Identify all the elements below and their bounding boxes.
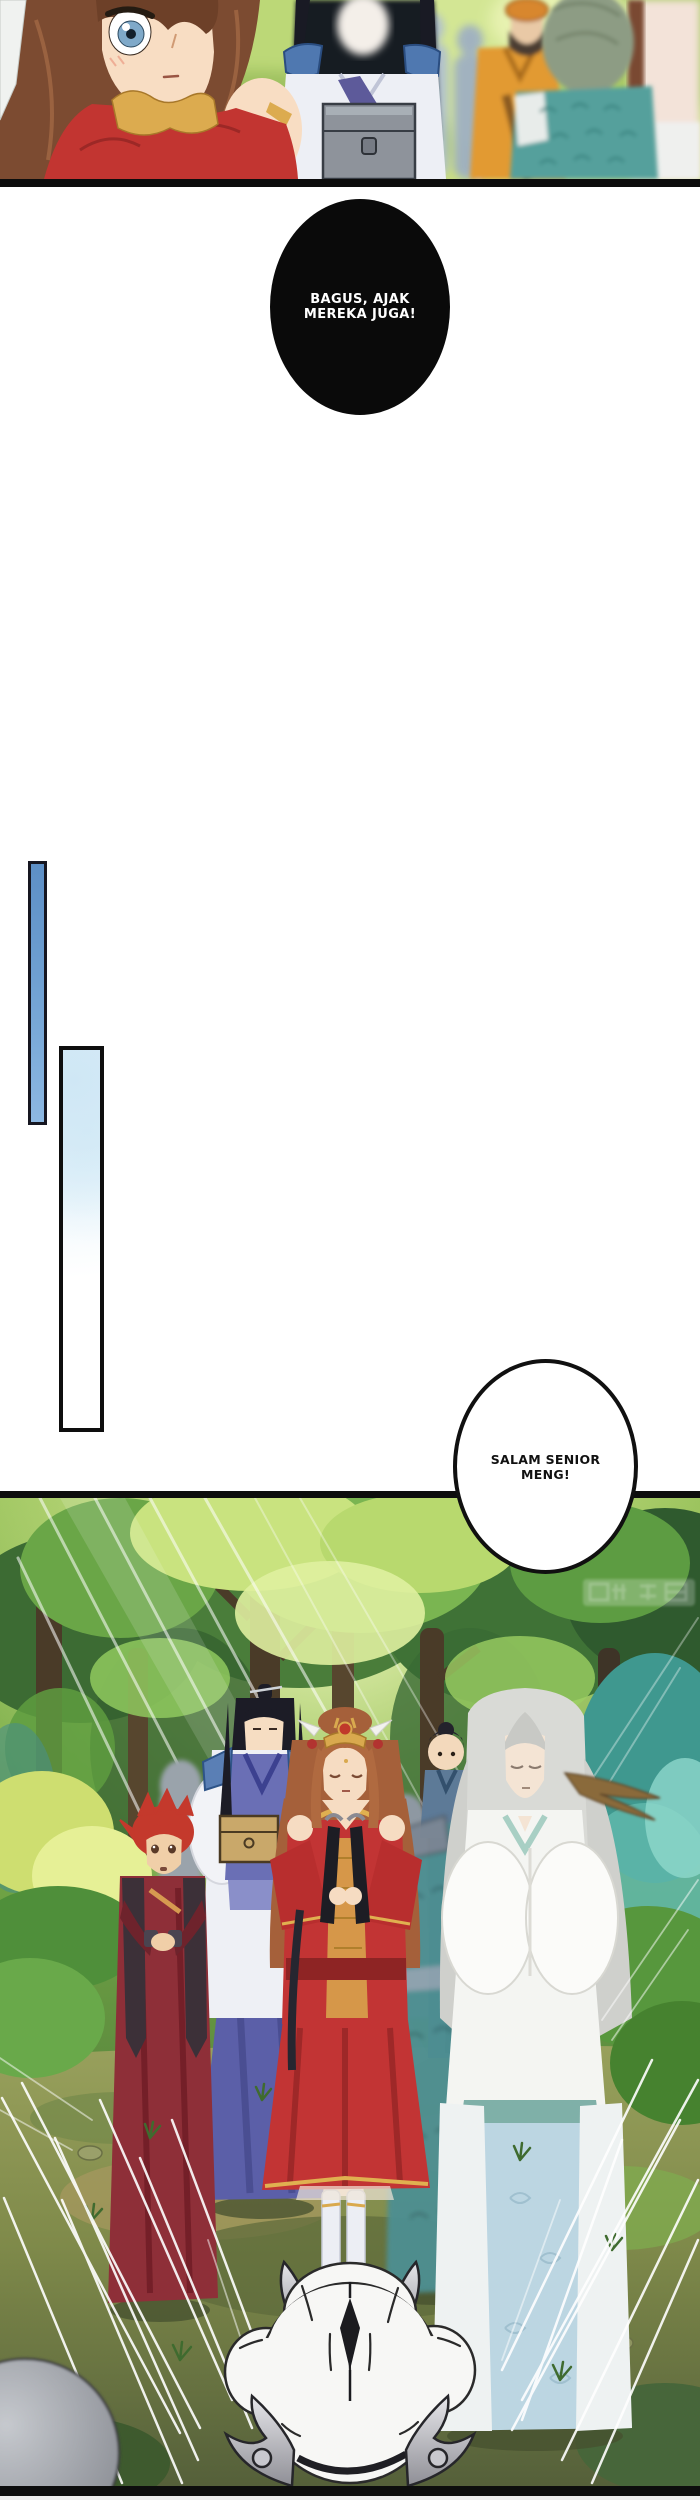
manga-page: BAGUS, AJAK MEREKA JUGA! SALAM SENIOR ME… (0, 0, 700, 2500)
greeting-line-2: MENG! (491, 1467, 601, 1482)
forest-art (0, 1498, 700, 2486)
slate-chest-box (323, 104, 415, 179)
transition-bar-small (28, 861, 47, 1125)
speech-bubble-shout: BAGUS, AJAK MEREKA JUGA! (270, 199, 450, 415)
shout-line-1: BAGUS, AJAK (304, 292, 416, 307)
blue-man-figure (278, 0, 446, 179)
transition-bar-large (59, 1046, 104, 1432)
greeting-line-1: SALAM SENIOR (491, 1452, 601, 1467)
shout-line-2: MEREKA JUGA! (304, 307, 416, 322)
panel-top-art (0, 0, 700, 179)
panel-top-crowd (0, 0, 700, 187)
wooden-gift-box (220, 1816, 278, 1862)
speech-bubble-greeting: SALAM SENIOR MENG! (453, 1359, 638, 1574)
next-panel-edge (0, 2496, 700, 2500)
panel-forest-scene (0, 1491, 700, 2496)
girl-eye (108, 9, 152, 55)
watermark (583, 1579, 695, 1606)
